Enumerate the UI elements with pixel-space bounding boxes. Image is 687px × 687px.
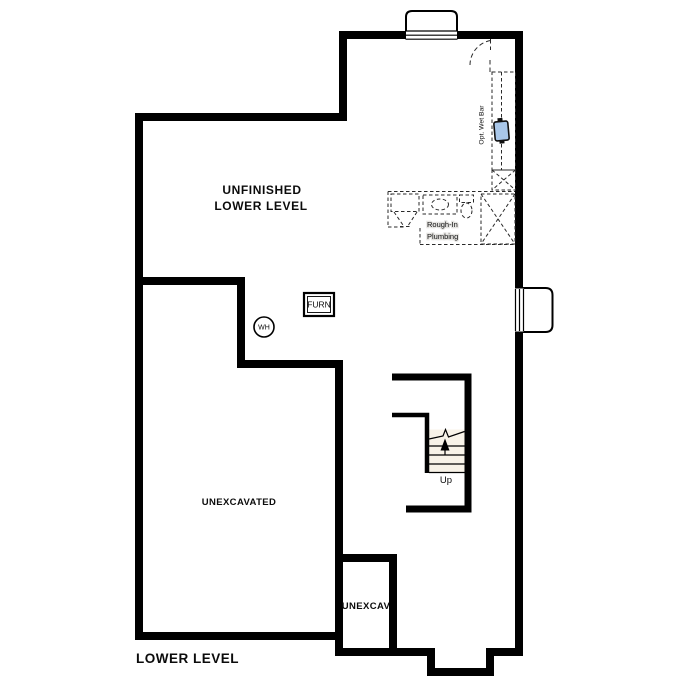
main-room-label-line2: LOWER LEVEL	[214, 199, 307, 213]
floor-plan-drawing: FURN WH UNFINISHED LOWER LEVEL UNEXCAVAT…	[0, 0, 687, 687]
wet-bar-label: Opt. Wet Bar	[479, 105, 486, 145]
plan-title: LOWER LEVEL	[136, 651, 239, 666]
rough-in-label-line2: Plumbing	[427, 232, 458, 241]
plumbing-vanity-sink	[423, 195, 457, 214]
stairwell-inner-wall	[392, 415, 427, 473]
water-heater-label: WH	[258, 325, 270, 332]
water-heater-circle: WH	[254, 317, 274, 337]
plumbing-shower	[481, 194, 515, 244]
window-right	[515, 288, 553, 332]
wet-bar-cabinet	[492, 170, 516, 190]
window-top	[406, 11, 458, 40]
furnace-box: FURN	[304, 293, 334, 316]
furnace-label: FURN	[307, 300, 331, 310]
door-swing-arc	[470, 39, 491, 72]
plumbing-laundry-tub	[391, 194, 419, 227]
main-room-label-line1: UNFINISHED	[222, 183, 301, 197]
stairs-up-label: Up	[440, 475, 452, 486]
wet-bar	[470, 39, 516, 190]
stair-floor	[429, 430, 465, 474]
small-unexcavated-label: UNEXCAV	[342, 601, 391, 612]
floor-plan-page: FURN WH UNFINISHED LOWER LEVEL UNEXCAVAT…	[0, 0, 687, 687]
rough-in-label-line1: Rough-In	[427, 220, 458, 229]
plumbing-toilet	[460, 195, 474, 218]
unexcavated-label: UNEXCAVATED	[202, 497, 277, 508]
wet-bar-sink	[493, 117, 509, 144]
footprint-outline	[139, 35, 519, 672]
